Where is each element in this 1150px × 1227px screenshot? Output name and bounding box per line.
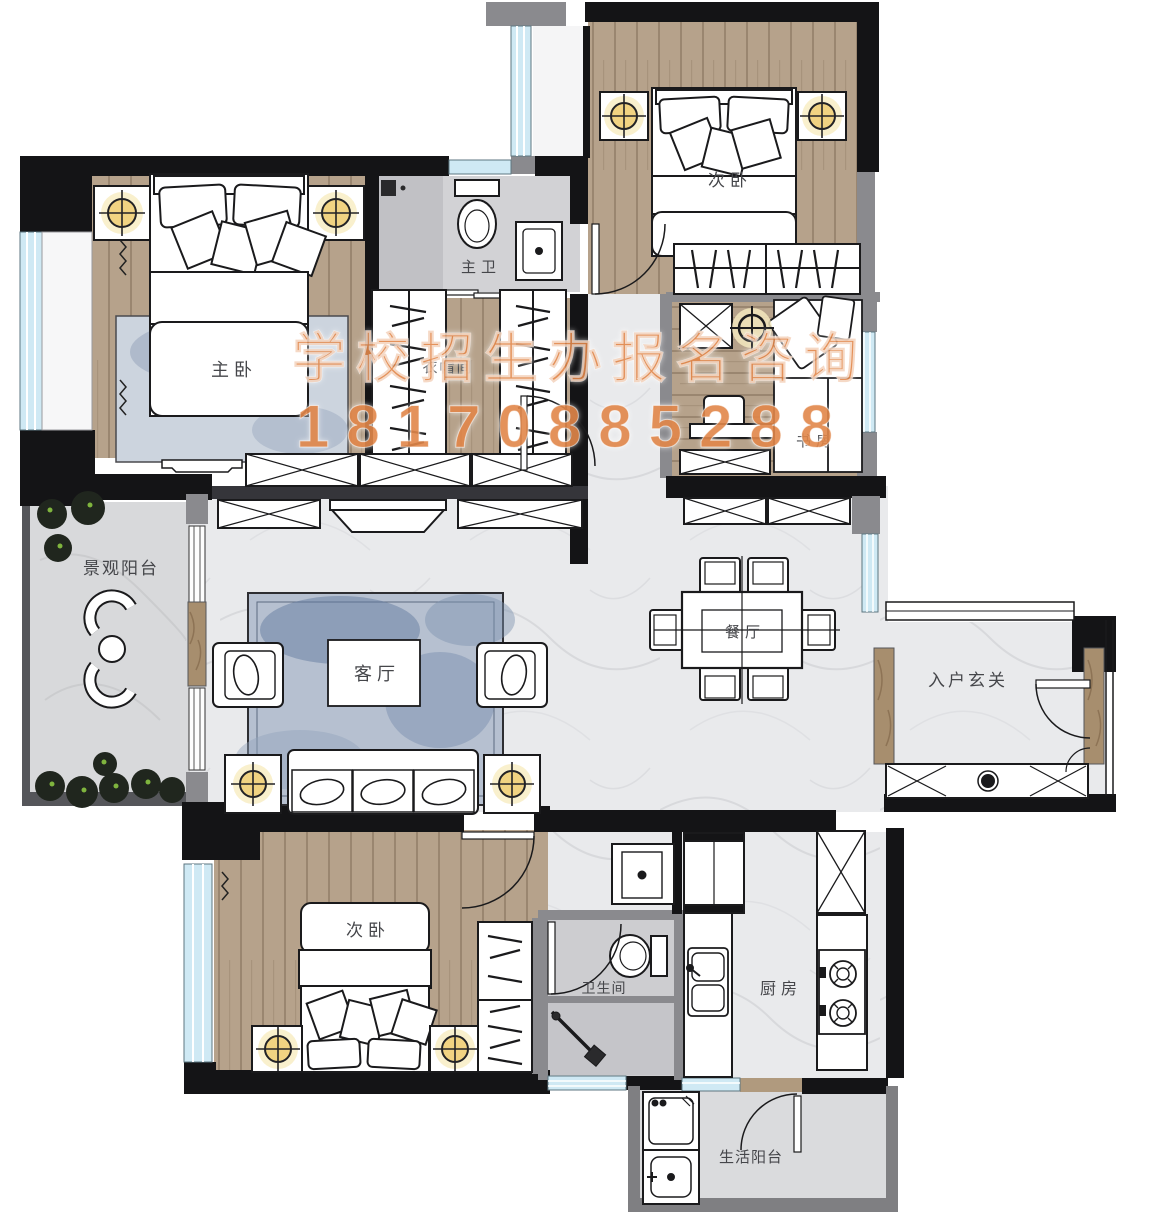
room-label-bathroom: 卫生间: [582, 980, 627, 996]
sideboard-x: [684, 498, 766, 524]
service-balcony-window: [682, 1078, 740, 1091]
sideboard-x: [768, 498, 850, 524]
room-label-kitchen: 厨房: [760, 980, 802, 998]
tall-cabinet: [684, 833, 744, 913]
room-label-living-room: 客厅: [354, 664, 400, 684]
bath-sink-icon: [516, 222, 562, 280]
room-label-entry-hall: 入户玄关: [928, 671, 1008, 690]
bath-top-window: [449, 160, 511, 174]
sofa: [288, 750, 478, 814]
balcony-living-divider: [188, 526, 206, 770]
wardrobe: [372, 290, 446, 472]
marble-pillar: [874, 648, 894, 764]
dining-right-window: [862, 534, 878, 612]
kitchen-sink-icon: [687, 948, 728, 1016]
tv-console: [218, 500, 320, 528]
room-label-view-balcony: 景观阳台: [83, 559, 159, 578]
railing: [886, 602, 1074, 620]
stove-icon: [819, 950, 865, 1034]
armchair: [477, 643, 547, 707]
shoe-cabinet: [886, 764, 1088, 798]
cabinet-x: [680, 304, 732, 348]
room-label-master-bedroom: 主卧: [211, 360, 257, 380]
room-label-cloakroom: 衣帽间: [422, 359, 473, 376]
shower-head-icon: [381, 180, 396, 196]
tv-icon: [330, 500, 446, 532]
kitchen-counter: [684, 913, 732, 1077]
wardrobe: [500, 290, 566, 472]
room-label-master-bath: 主卫: [461, 259, 501, 276]
laundry-sink-icon: [643, 1150, 699, 1204]
floor-plan-page: 主卧 主卫 衣帽间 次卧 书房 景观阳台 客厅 餐厅 入户玄关 次卧 卫生间 厨…: [0, 0, 1150, 1227]
bathroom-bottom-window: [548, 1076, 626, 1090]
room-label-bedroom-top: 次卧: [708, 171, 752, 190]
cabinet-x: [680, 450, 770, 474]
fridge-cabinet: [817, 831, 865, 913]
wardrobe: [674, 244, 860, 294]
room-label-dining-room: 餐厅: [725, 624, 765, 641]
corridor-floor: [588, 294, 668, 494]
room-label-bedroom-bottom: 次卧: [346, 921, 390, 940]
tv-console: [458, 500, 582, 528]
floor-plan-drawing: 主卧 主卫 衣帽间 次卧 书房 景观阳台 客厅 餐厅 入户玄关 次卧 卫生间 厨…: [0, 0, 1150, 1227]
cabinet-x: [360, 454, 470, 486]
wall-console: [162, 460, 242, 472]
balcony-table: [99, 636, 125, 662]
bathroom-shower-floor: [548, 1003, 674, 1075]
kitchen-counter: [817, 915, 867, 1070]
cabinet-x: [246, 454, 358, 486]
bay-shaft-floor: [533, 26, 585, 158]
room-label-service-balcony: 生活阳台: [719, 1149, 783, 1166]
vanity-sink-icon: [612, 844, 674, 904]
washing-machine-icon: [643, 1092, 699, 1150]
armchair: [213, 643, 283, 707]
desk: [690, 424, 774, 438]
room-label-study: 书房: [796, 433, 836, 450]
marble-pillar: [1084, 648, 1104, 764]
service-balcony: [643, 1092, 699, 1204]
toilet-icon: [455, 180, 499, 248]
bay-shaft-window: [511, 26, 531, 156]
wardrobe: [478, 922, 532, 1072]
